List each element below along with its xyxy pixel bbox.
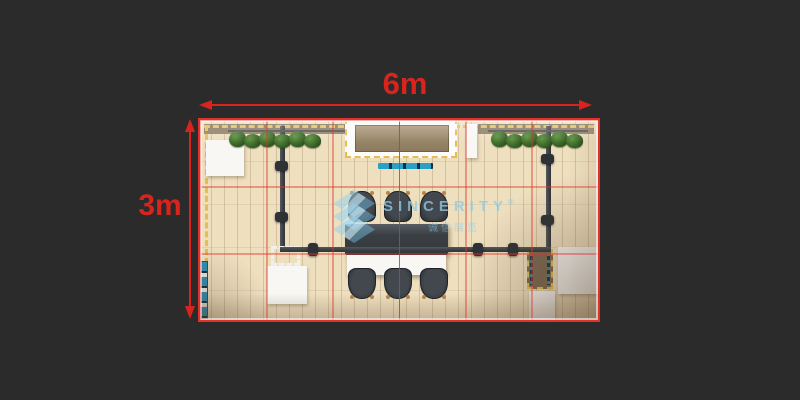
reception-back-panel bbox=[355, 125, 449, 152]
truss-clamp bbox=[508, 243, 518, 256]
plant-row-right bbox=[491, 131, 581, 155]
floorplan-render: SINCERITY® 诚信展览 bbox=[198, 118, 600, 322]
left-wall-display bbox=[199, 261, 208, 319]
cabinet-bottom-right bbox=[527, 249, 553, 289]
office-chair bbox=[420, 268, 448, 299]
counter-right bbox=[558, 247, 598, 294]
shelf-edge bbox=[530, 253, 533, 285]
office-chair bbox=[384, 191, 412, 222]
office-chair bbox=[384, 268, 412, 299]
counter-right-lower bbox=[529, 291, 555, 320]
booth-floorplan-scene: 6m 3m bbox=[0, 0, 800, 400]
office-chair bbox=[420, 191, 448, 222]
truss-clamp bbox=[541, 215, 554, 225]
plant-icon bbox=[566, 134, 583, 148]
truss-clamp bbox=[275, 212, 288, 222]
height-dimension-label: 3m bbox=[134, 189, 186, 223]
plant-icon bbox=[304, 134, 321, 148]
truss-clamp bbox=[473, 243, 483, 256]
brochure-strip bbox=[378, 163, 433, 169]
truss-clamp bbox=[275, 161, 288, 171]
wall-return-panel bbox=[466, 124, 477, 158]
truss-clamp bbox=[308, 243, 318, 256]
reception-recess bbox=[345, 118, 457, 158]
office-chair bbox=[348, 268, 376, 299]
truss-clamp bbox=[541, 154, 554, 164]
counter-bottom-left bbox=[267, 266, 307, 304]
height-dimension-arrow bbox=[189, 122, 191, 316]
width-dimension-label: 6m bbox=[366, 66, 444, 102]
office-chair bbox=[348, 191, 376, 222]
width-dimension-arrow bbox=[202, 104, 589, 106]
shelf-edge bbox=[547, 253, 550, 285]
plant-row-left bbox=[229, 131, 319, 155]
